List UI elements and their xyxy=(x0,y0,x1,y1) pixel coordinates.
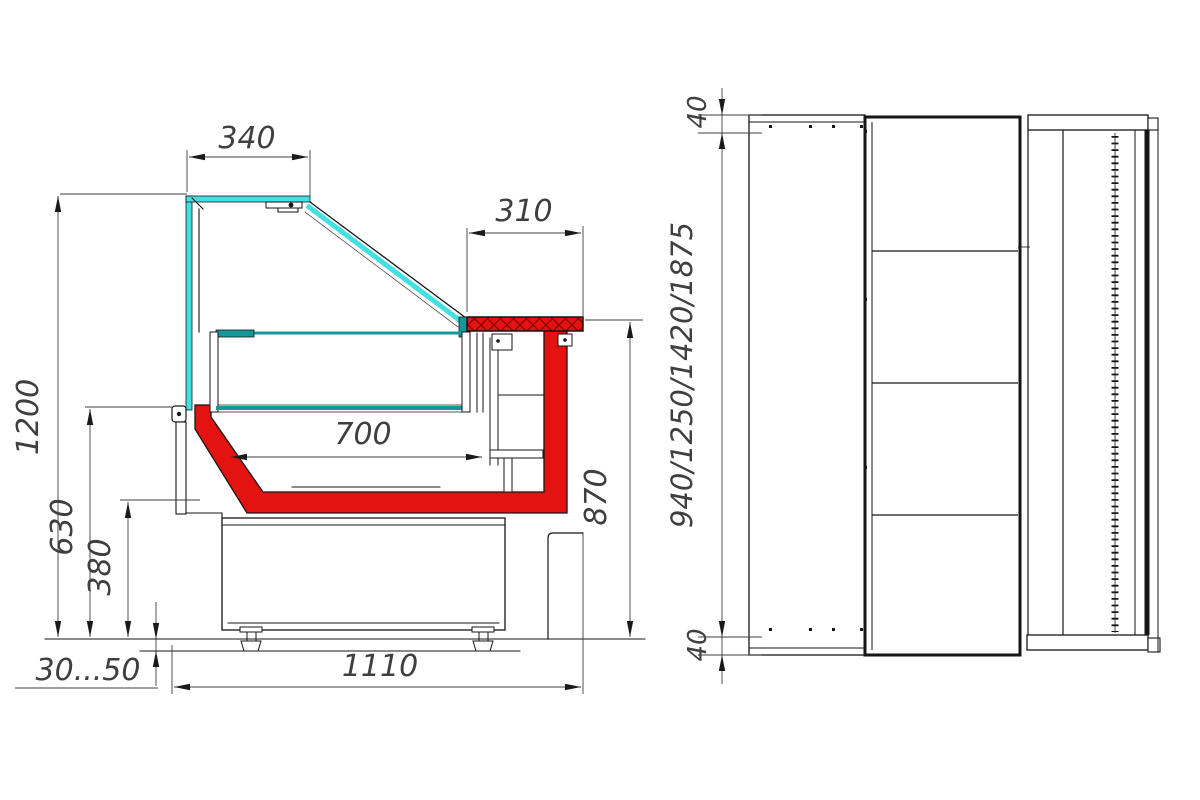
dim-label-base-height: 380 xyxy=(83,538,118,595)
bed-front-wall xyxy=(462,332,470,412)
rear-glass-panel xyxy=(186,196,192,410)
dim-label-bed-height: 630 xyxy=(45,498,80,555)
red-body xyxy=(195,317,583,513)
drawing-svg: 340 310 700 1200 630 380 30...50 1110 87… xyxy=(0,0,1200,800)
top-glass-panel xyxy=(186,196,310,202)
lower-cabinet xyxy=(222,518,505,651)
counter-top-hatch xyxy=(467,317,583,331)
front-glass-panel xyxy=(309,207,462,322)
dim-label-feet-range: 30...50 xyxy=(36,653,141,688)
front-glass-inner-line xyxy=(305,212,458,327)
counter-bracket-left xyxy=(492,334,512,350)
dim-label-edge-top: 40 xyxy=(683,95,713,128)
dim-label-top-glass: 340 xyxy=(218,121,275,156)
technical-drawing-canvas: 340 310 700 1200 630 380 30...50 1110 87… xyxy=(0,0,1200,800)
dim-label-counter-height: 870 xyxy=(579,468,614,525)
dim-label-edge-bottom: 40 xyxy=(683,628,713,661)
top-corner-tab xyxy=(1148,118,1158,130)
glass-panels xyxy=(186,196,467,410)
front-glass-edge xyxy=(310,202,466,318)
plan-view xyxy=(749,115,1160,655)
plan-view-dimensions: 40 940/1250/1420/1875 40 xyxy=(665,88,762,684)
dim-label-length-variants: 940/1250/1420/1875 xyxy=(665,222,699,528)
dim-label-bed-depth: 700 xyxy=(334,417,391,452)
plan-back-panel xyxy=(749,115,867,655)
dim-label-shelf-depth: 310 xyxy=(495,194,552,229)
display-bed xyxy=(210,330,470,412)
shelf-post xyxy=(504,458,512,492)
canopy-bracket xyxy=(266,202,302,212)
bed-rear-wall xyxy=(210,332,218,412)
top-frame-bar xyxy=(1028,115,1148,130)
plan-shelf-box xyxy=(865,117,1030,655)
plan-front-assembly xyxy=(1027,115,1160,652)
fixing-ticks xyxy=(769,125,867,631)
bed-rear-lip xyxy=(216,330,254,337)
bottom-frame-bar xyxy=(1027,635,1148,650)
dim-label-overall-depth: 1110 xyxy=(342,649,418,684)
machine-back-panel xyxy=(548,533,583,639)
dim-label-overall-height: 1200 xyxy=(11,379,46,455)
service-shelf xyxy=(490,450,543,458)
